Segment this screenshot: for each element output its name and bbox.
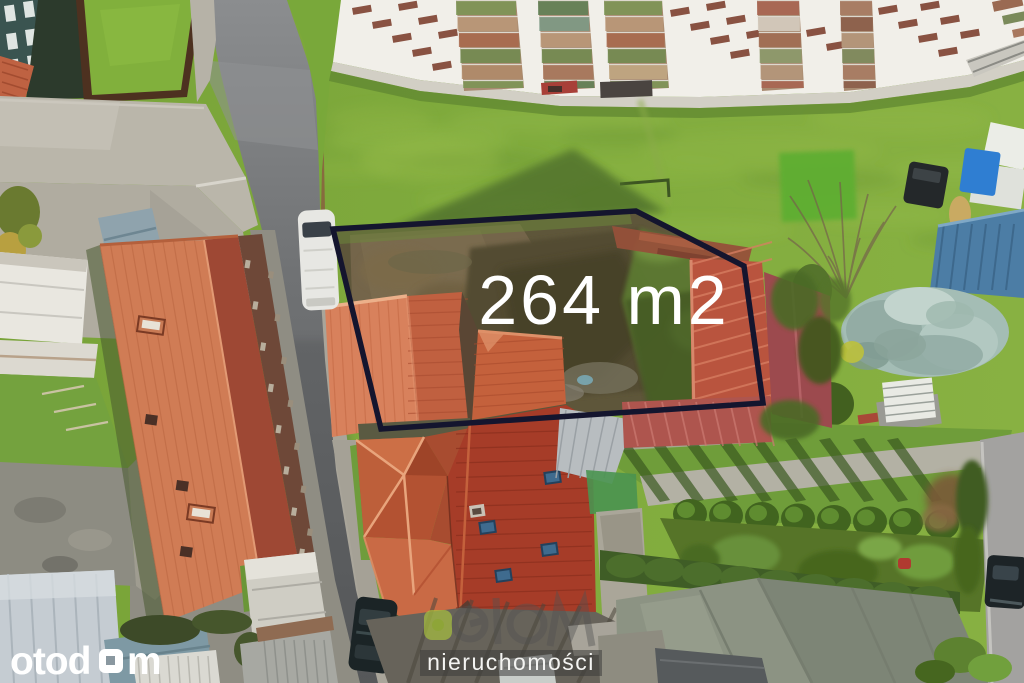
svg-text:nieruchomości: nieruchomości xyxy=(427,649,595,675)
svg-text:264 m2: 264 m2 xyxy=(478,261,729,339)
svg-text:otod: otod xyxy=(10,640,90,683)
svg-text:m: m xyxy=(127,640,162,683)
